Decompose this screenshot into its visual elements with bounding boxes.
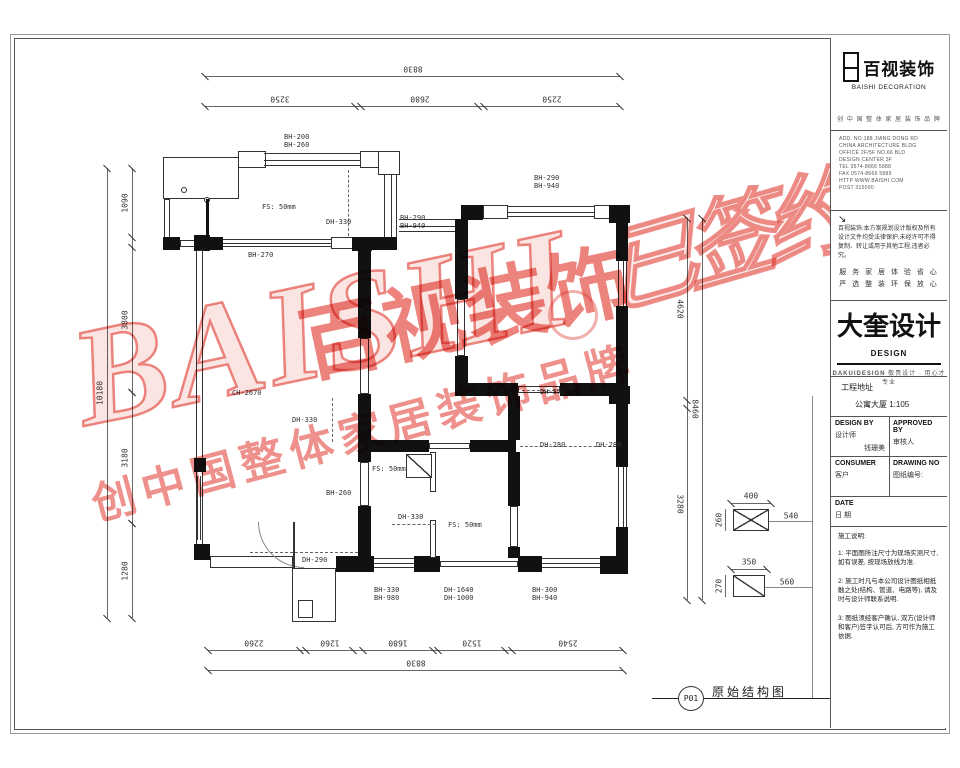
callout-dim-line <box>725 509 726 531</box>
section-symbol <box>733 509 769 531</box>
wall <box>616 404 628 467</box>
dim-label: 2540 <box>558 639 577 648</box>
plan-label: DH-290 <box>302 556 327 564</box>
wall <box>414 556 440 572</box>
company-address: ADD. NO.188 JIANG DONG RDCHINA ARCHITECT… <box>831 136 947 192</box>
wall <box>616 223 628 261</box>
wall <box>371 440 429 452</box>
design-by-label-cn: 设计师 <box>835 430 885 440</box>
wall <box>518 556 542 572</box>
dim-overall-line <box>107 168 108 618</box>
slogan-line-1: 服 务 家 居 体 验 省 心 <box>838 267 940 279</box>
drawing-no-label-cn: 图纸编号: <box>893 470 943 480</box>
date-label-cn: 日 期 <box>835 510 943 520</box>
dim-label: 8830 <box>406 659 425 668</box>
dim-label: 540 <box>784 512 798 521</box>
dim-label: 3250 <box>270 95 289 104</box>
door-opening <box>457 299 465 356</box>
consumer-cell: CONSUMER 客户 <box>831 460 889 480</box>
dim-label: 2680 <box>410 95 429 104</box>
wall <box>358 250 371 338</box>
plan-label: FS: 50mm <box>262 203 296 211</box>
section-symbol <box>733 575 765 597</box>
company-logo-icon <box>843 52 859 82</box>
notice-text: 百视装饰:本方案规划设计版权及所有设计文件均受法律保护,未经许可不得复制、转让或… <box>838 225 940 261</box>
dim-label: 10180 <box>96 381 105 405</box>
callout-dim-line <box>731 503 771 504</box>
page-number-bubble: P01 <box>678 686 704 711</box>
dim-label: 2260 <box>244 639 263 648</box>
dim-overall-line <box>702 218 703 600</box>
dim-overall-line <box>208 670 623 671</box>
note-item: 2: 施工时凡与本公司设计图纸相抵触之处(结构、管道、电路等), 请及时与设计师… <box>838 577 940 604</box>
beam-dash <box>250 552 358 554</box>
company-tagline: 创 中 国 整 体 家 居 装 饰 品 牌 <box>831 114 947 123</box>
wall <box>508 452 520 506</box>
dim-label: 4620 <box>676 299 685 318</box>
address-line: POST 315000 <box>839 185 939 192</box>
approved-by-label-en: APPROVED BY <box>893 420 943 434</box>
wall <box>455 219 468 299</box>
wall <box>616 306 628 386</box>
dim-label: 560 <box>780 578 794 587</box>
leader-line <box>769 521 812 522</box>
wall <box>206 199 209 237</box>
address-line: TEL 0574-8666 5888 <box>839 164 939 171</box>
wall <box>455 356 468 385</box>
title-block: 百视装饰 BAISHI DECORATION 创 中 国 整 体 家 居 装 饰… <box>830 38 946 728</box>
company-name-en: BAISHI DECORATION <box>831 84 947 91</box>
plan-label: BH-300BH-940 <box>532 586 557 602</box>
wall-thin <box>164 199 170 239</box>
construction-notes: 施工说明: 1: 平面图所注尺寸为现场实测尺寸, 如有误差, 按现场放线为准.2… <box>831 532 947 651</box>
column <box>194 235 210 251</box>
wall <box>461 205 483 220</box>
dim-label: 270 <box>715 579 724 593</box>
dim-chain-line <box>208 650 623 651</box>
wall-pier <box>360 151 380 168</box>
beam-dash <box>332 398 334 442</box>
plan-label: DH-330 <box>292 416 317 424</box>
hinge-dot <box>181 187 187 193</box>
extension-line <box>812 396 813 698</box>
wall <box>470 440 516 452</box>
wall <box>358 506 371 556</box>
window-band <box>508 206 594 217</box>
plan-label: BH-330BH-980 <box>374 586 399 602</box>
notes-title: 施工说明: <box>838 532 940 541</box>
dim-label: 1520 <box>462 639 481 648</box>
plan-label: BH-290BH-940 <box>400 214 425 230</box>
company-logo-section: 百视装饰 BAISHI DECORATION <box>831 52 947 112</box>
wall <box>455 383 518 396</box>
slogan-line-2: 严 选 整 装 环 保 放 心 <box>838 279 940 291</box>
plan-label: DH-330 <box>326 218 351 226</box>
corner-pier <box>378 151 400 175</box>
wall-pier <box>594 205 610 219</box>
approved-by-cell: APPROVED BY 审核人 <box>893 420 943 447</box>
callout-dim-line <box>731 569 767 570</box>
page-number: P01 <box>684 694 698 703</box>
copyright-notice: ↘ 百视装饰:本方案规划设计版权及所有设计文件均受法律保护,未经许可不得复制、转… <box>831 214 947 291</box>
approved-by-label-cn: 审核人 <box>893 437 943 447</box>
address-line: HTTP WWW.BAISHI.COM <box>839 178 939 185</box>
watermark-ring <box>548 290 598 340</box>
drawing-no-cell: DRAWING NO 图纸编号: <box>893 460 943 480</box>
drawing-title: 原始结构图 <box>712 683 787 700</box>
leader-line <box>765 587 812 588</box>
door-opening <box>360 338 369 394</box>
address-line: FAX 0574-8666 5889 <box>839 171 939 178</box>
wall <box>560 383 616 396</box>
window-band <box>223 239 331 247</box>
wall-pier <box>483 205 508 219</box>
project-address: 工程地址 <box>841 382 937 393</box>
wall <box>358 394 371 462</box>
floor-plan: BH-200BH-260FS: 50mmDH-330BH-290BH-940BH… <box>0 0 830 768</box>
door-opening <box>510 506 518 547</box>
design-by-cell: DESIGN BY 设计师 钱珊美 <box>831 420 889 453</box>
dim-label: 1090 <box>121 193 130 212</box>
window-band <box>618 467 627 527</box>
plan-label: BH-200BH-260 <box>284 133 309 149</box>
window-band <box>618 261 627 306</box>
note-item: 3: 图纸须经客户确认, 双方(设计师和客户)签字认可后, 方可作为施工依据. <box>838 614 940 641</box>
entry-step <box>298 600 313 618</box>
dim-label: 400 <box>744 492 758 501</box>
studio-name: 大奎设计 <box>837 312 941 341</box>
door-opening <box>360 462 369 506</box>
wall <box>336 556 374 572</box>
cabinet <box>163 157 239 199</box>
dim-label: 260 <box>715 513 724 527</box>
window-band <box>384 175 397 237</box>
dim-label: 3280 <box>676 494 685 513</box>
company-name: 百视装饰 <box>863 55 935 80</box>
address-line: ADD. NO.188 JIANG DONG RD <box>839 136 939 143</box>
beam-dash <box>392 524 436 526</box>
project-section: 工程地址 公寓大厦 1:105 <box>831 382 947 410</box>
date-cell: DATE 日 期 <box>831 500 947 520</box>
plan-label: DH-280 <box>540 441 565 449</box>
dim-chain-line <box>205 106 620 107</box>
designer-name: 钱珊美 <box>835 443 885 453</box>
dim-label: 2250 <box>542 95 561 104</box>
dim-label: 3800 <box>121 310 130 329</box>
window-band <box>264 153 362 166</box>
wall <box>163 237 180 250</box>
drawing-no-label-en: DRAWING NO <box>893 460 943 467</box>
plan-label: FS: 50mm <box>448 521 482 529</box>
wall <box>600 556 628 574</box>
dim-label: 350 <box>742 558 756 567</box>
plan-label: CH-2670 <box>232 389 262 397</box>
drawing-sheet: BH-200BH-260FS: 50mmDH-330BH-290BH-940BH… <box>0 0 960 768</box>
plan-label: BH-260 <box>326 489 351 497</box>
dim-label: 1280 <box>121 561 130 580</box>
window-band <box>197 476 203 540</box>
column <box>352 237 372 251</box>
address-line: DESIGN CENTER 3F <box>839 157 939 164</box>
date-label-en: DATE <box>835 500 943 507</box>
plan-label: BH-270 <box>248 251 273 259</box>
plan-label: DH-1640DH-1000 <box>444 586 474 602</box>
dim-label: 8460 <box>691 399 700 418</box>
door-leaf <box>293 522 295 568</box>
design-by-label-en: DESIGN BY <box>835 420 885 427</box>
wall <box>508 547 520 558</box>
column <box>194 544 210 560</box>
door-opening <box>440 561 518 567</box>
plan-label: DH-370 <box>540 388 565 396</box>
door-opening <box>429 443 470 449</box>
column <box>194 458 206 472</box>
studio-en: DESIGN <box>871 349 908 358</box>
dim-label: 8830 <box>403 65 422 74</box>
consumer-label-en: CONSUMER <box>835 460 885 467</box>
note-item: 1: 平面图所注尺寸为现场实测尺寸, 如有误差, 按现场放线为准. <box>838 549 940 567</box>
arrow-icon: ↘ <box>838 214 940 225</box>
plan-label: FS: 50mm <box>372 465 406 473</box>
plan-label: BH-290BH-940 <box>534 174 559 190</box>
studio-logo-section: 大奎设计DESIGN DAKUIDESIGN 敬畏设计 · 用心才专业 <box>831 306 947 386</box>
dim-label: 1680 <box>388 639 407 648</box>
plan-label: DH-280 <box>596 441 621 449</box>
address-line: CHINA ARCHITECTURE BLDG <box>839 143 939 150</box>
consumer-label-cn: 客户 <box>835 470 885 480</box>
beam-dash <box>348 170 350 236</box>
project-scale: 公寓大厦 1:105 <box>841 399 937 410</box>
dim-label: 3180 <box>121 448 130 467</box>
window-band <box>542 558 600 568</box>
dim-overall-line <box>205 76 620 77</box>
dim-label: 1260 <box>320 639 339 648</box>
plan-label: DH-330 <box>398 513 423 521</box>
callout-dim-line <box>725 575 726 597</box>
window-band <box>374 558 414 568</box>
fixture-diagonal <box>406 454 432 478</box>
wall-pier <box>238 151 266 168</box>
address-line: OFFICE 2F/5F NO.66 BLD <box>839 150 939 157</box>
wall <box>508 396 520 440</box>
column <box>609 205 630 223</box>
